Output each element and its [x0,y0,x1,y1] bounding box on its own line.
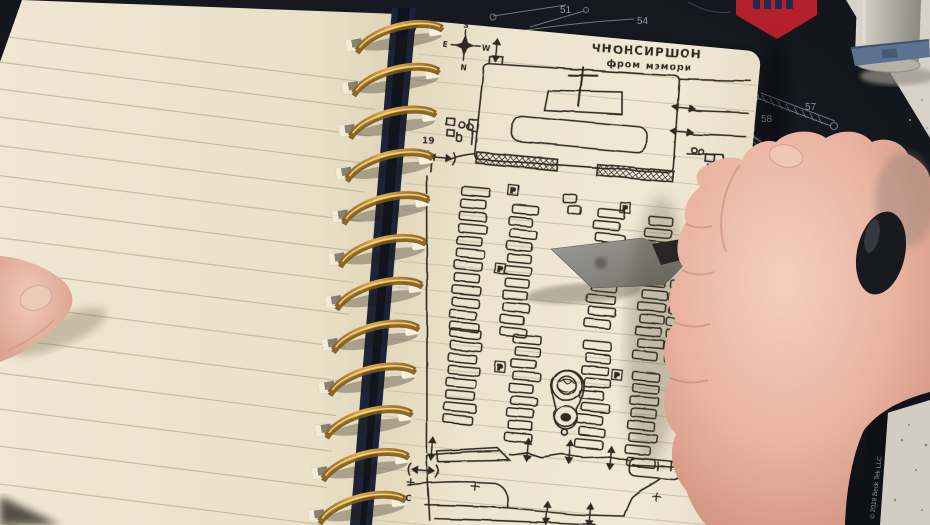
mat-number-54: 54 [637,16,649,27]
mat-number-51: 51 [560,5,572,16]
photo-scene: 51 54 57 58 50 [0,0,930,525]
gate-number-label: 19 [421,136,434,146]
fountain-core [561,413,571,421]
compass-right-label: W [482,44,492,54]
mat-number-57: 57 [805,102,817,113]
compass-bottom-label: N [460,63,467,73]
plot-marker-letter: P [510,187,516,195]
compass-left-label: E [442,39,448,48]
plot-marker-letter: P [497,265,503,273]
pipe [851,0,930,73]
plot-marker-letter: P [614,372,620,380]
plot-marker-letter: P [497,364,503,372]
plot-marker-letter: P [622,205,628,213]
